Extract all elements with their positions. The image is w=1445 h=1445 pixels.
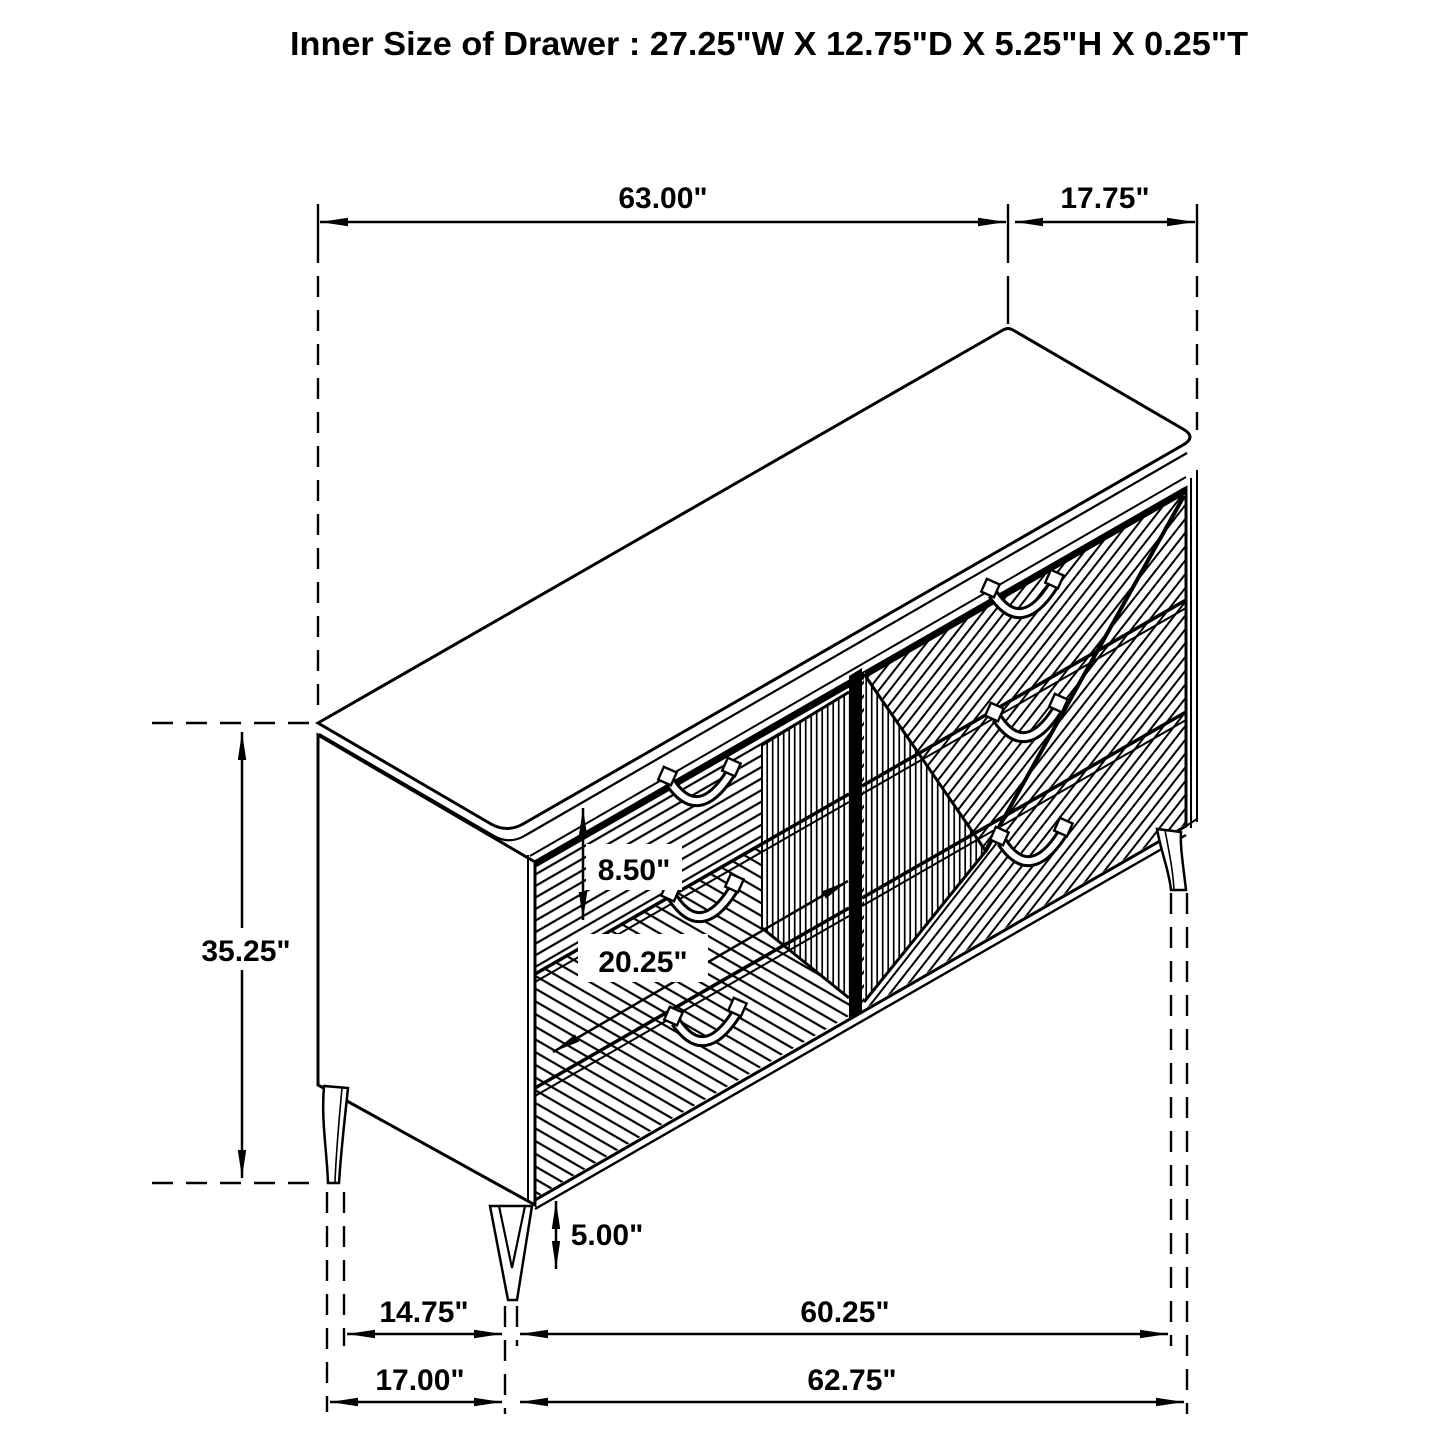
- dimension-diagram-page: Inner Size of Drawer : 27.25"W X 12.75"D…: [0, 0, 1445, 1445]
- dim-base-depth-label: 17.00": [375, 1364, 464, 1397]
- dim-leg-span-label: 60.25": [800, 1296, 889, 1329]
- dim-drawer-width-label: 20.25": [598, 946, 687, 979]
- dim-top-width-label: 63.00": [618, 182, 707, 215]
- right-edge-lines: [1186, 470, 1197, 828]
- dim-height-label: 35.25": [201, 935, 290, 968]
- leg-front-right: [1157, 829, 1186, 890]
- dim-drawer-height-label: 8.50": [598, 854, 671, 887]
- diagram-title: Inner Size of Drawer : 27.25"W X 12.75"D…: [290, 25, 1248, 62]
- dresser-drawing: [318, 329, 1197, 1301]
- center-divider: [849, 668, 862, 1020]
- dim-clearance-label: 5.00": [571, 1219, 644, 1252]
- leg-front-left: [490, 1206, 532, 1300]
- dim-top-depth-label: 17.75": [1060, 182, 1149, 215]
- dim-leg-inset-label: 14.75": [379, 1296, 468, 1329]
- dresser-dimension-diagram: Inner Size of Drawer : 27.25"W X 12.75"D…: [0, 0, 1445, 1445]
- dim-base-width-label: 62.75": [807, 1364, 896, 1397]
